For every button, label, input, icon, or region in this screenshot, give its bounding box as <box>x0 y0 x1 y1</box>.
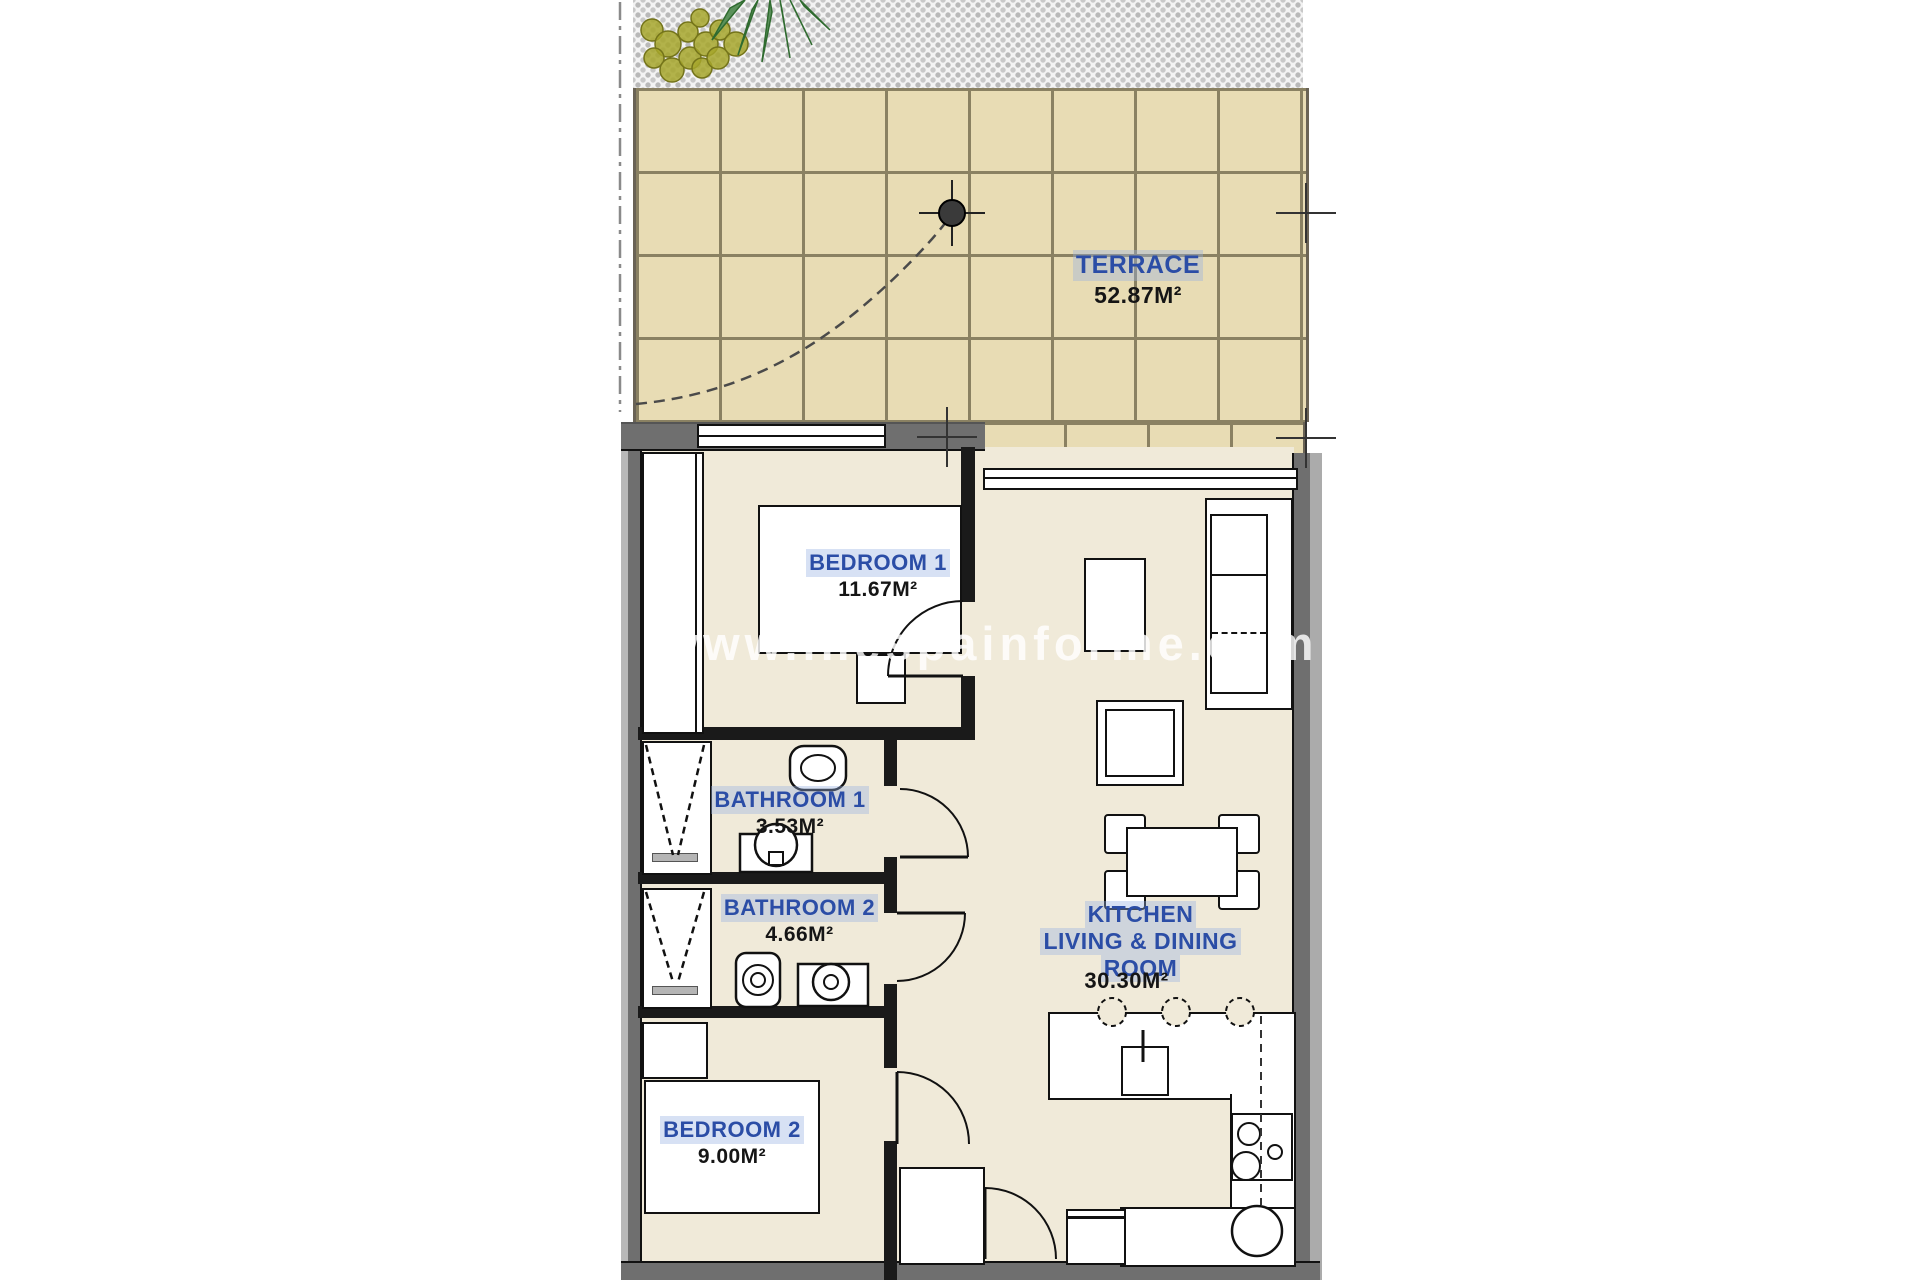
room-name: KITCHEN <box>1085 901 1197 928</box>
room-area: 3.53M² <box>690 814 890 840</box>
room-area: 11.67M² <box>788 577 968 603</box>
wall-left <box>621 422 642 1280</box>
terrace-label: TERRACE 52.87M² <box>1038 250 1238 310</box>
kitchen-appliance <box>1066 1209 1126 1265</box>
wall-bedroom2-right-b <box>884 1141 897 1280</box>
floor-plan: TERRACE 52.87M² BEDROOM 1 11.67M² BATHRO… <box>0 0 1920 1280</box>
kitchen-counter-island <box>1048 1012 1296 1100</box>
room-area: 30.30M² <box>1014 967 1239 995</box>
wall-bedroom2-right-a <box>884 1018 897 1068</box>
gravel-strip <box>633 0 1303 91</box>
bathroom1-shower-drain <box>652 853 698 862</box>
watermark: www.inespainforme.com <box>652 616 1328 671</box>
kitchen-sink-square <box>1121 1046 1169 1096</box>
bathroom2-shower-drain <box>652 986 698 995</box>
terrace-sliding-door <box>983 468 1298 490</box>
bathroom1-label: BATHROOM 1 3.53M² <box>690 786 890 840</box>
bedroom2-label: BEDROOM 2 9.00M² <box>642 1116 822 1170</box>
kitchen-counter-bottom <box>1120 1207 1296 1267</box>
coffee-table <box>1096 700 1184 786</box>
bedroom1-label: BEDROOM 1 11.67M² <box>788 549 968 603</box>
bedroom2-wardrobe <box>642 1022 708 1079</box>
room-name: LIVING & DINING <box>1040 928 1240 955</box>
room-name: BEDROOM 1 <box>806 549 950 577</box>
bedroom1-window <box>697 424 886 448</box>
room-name: BATHROOM 1 <box>711 786 868 814</box>
dining-table <box>1126 827 1238 897</box>
kitchen-living-label: KITCHEN LIVING & DINING ROOM 30.30M² <box>1028 901 1253 995</box>
wall-right <box>1292 453 1322 1280</box>
room-area: 9.00M² <box>642 1144 822 1170</box>
bathroom2-label: BATHROOM 2 4.66M² <box>702 894 897 948</box>
room-area: 4.66M² <box>702 922 897 948</box>
entrance-nook <box>899 1167 985 1265</box>
bedroom1-wardrobe <box>642 452 704 734</box>
wall-bathrooms-right-a <box>884 740 897 786</box>
room-name: BEDROOM 2 <box>660 1116 804 1144</box>
room-area: 52.87M² <box>1038 281 1238 310</box>
room-name: TERRACE <box>1073 250 1203 281</box>
room-name: BATHROOM 2 <box>721 894 878 922</box>
